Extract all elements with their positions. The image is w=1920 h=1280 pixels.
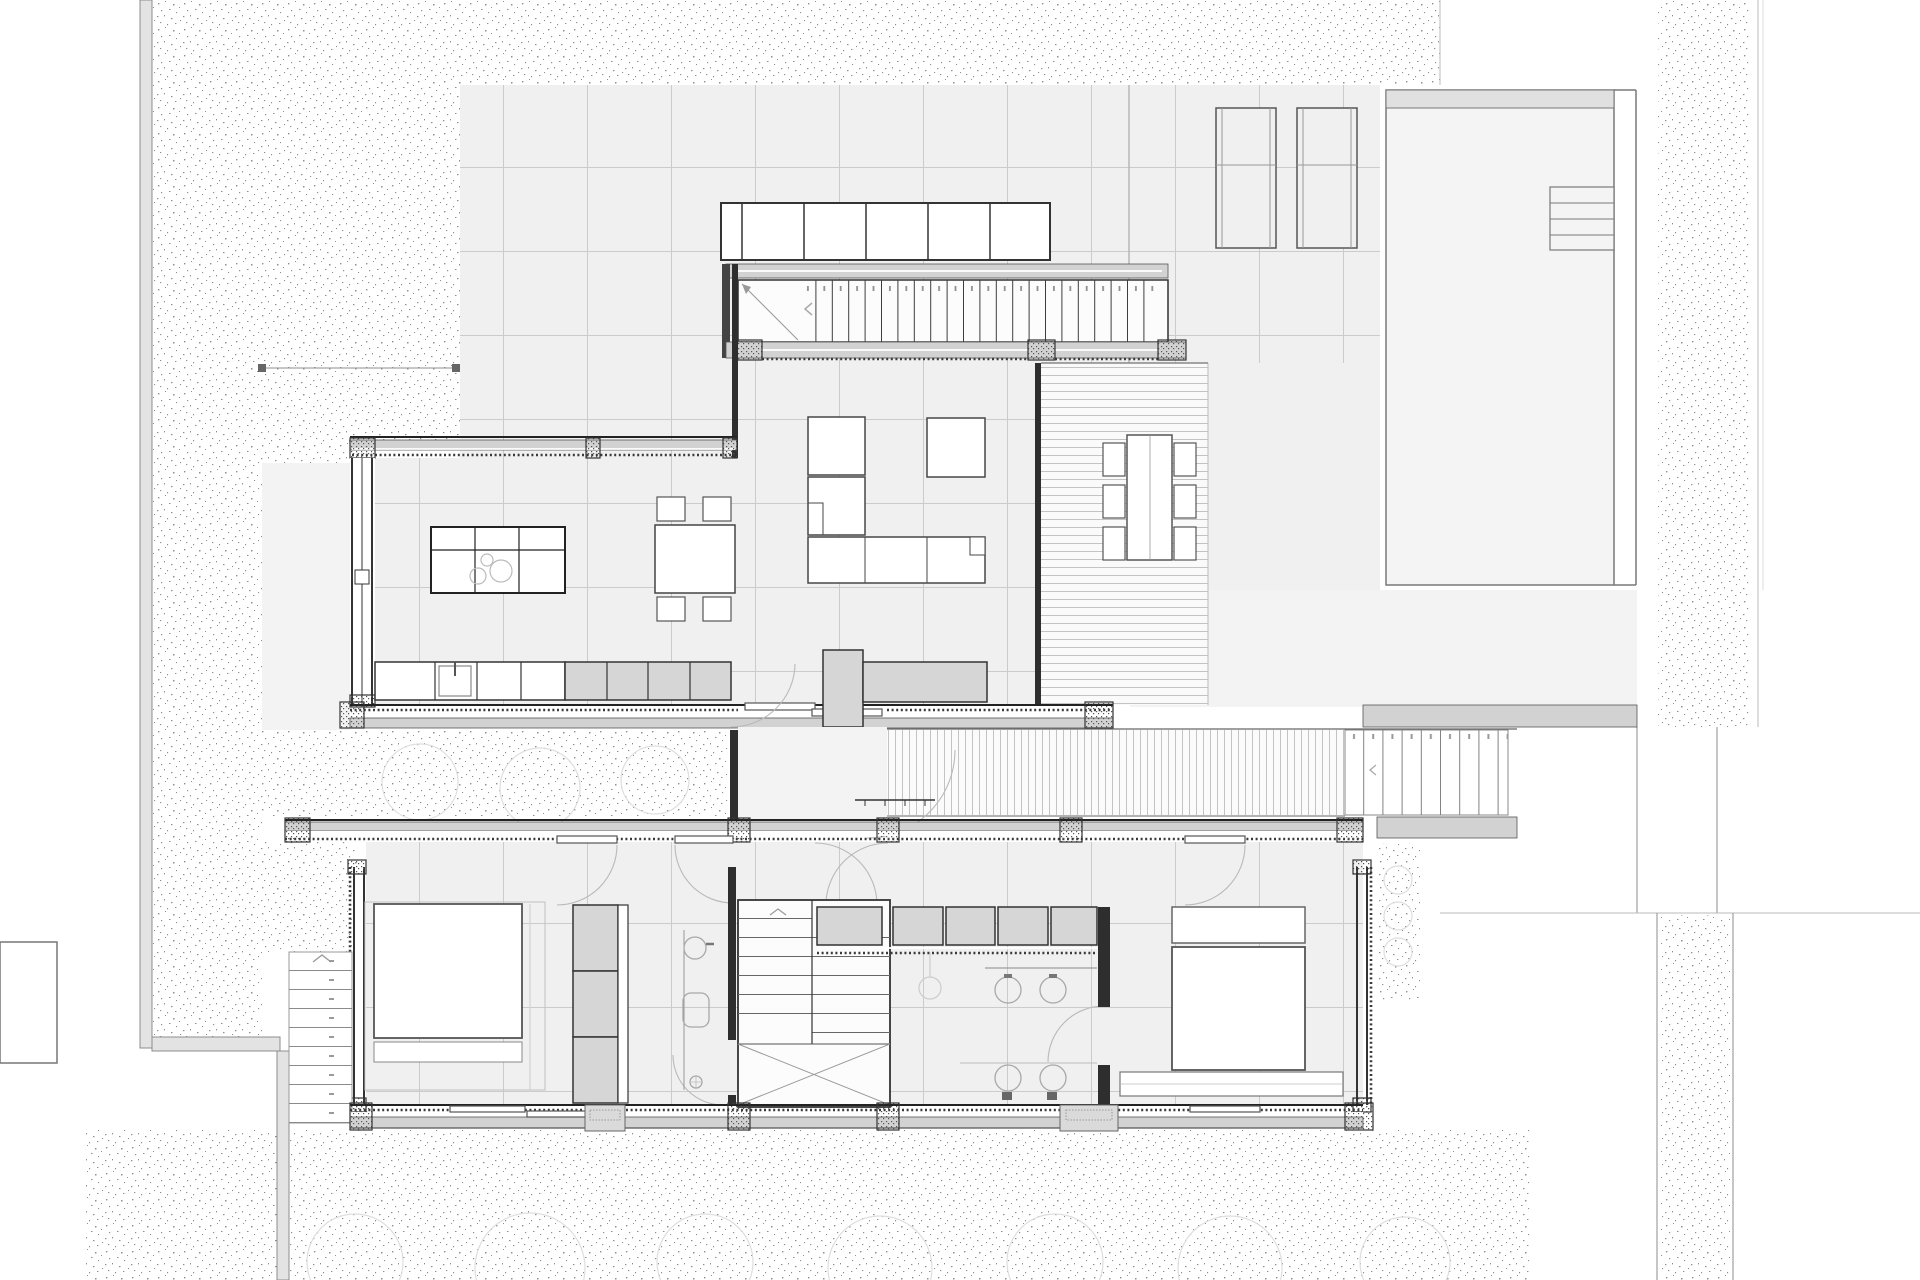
door-leaf: [1185, 836, 1245, 843]
pool-steps: [1550, 187, 1614, 250]
bed: [1172, 947, 1305, 1070]
door-leaf: [675, 836, 733, 843]
outbuilding: [0, 942, 57, 1063]
pool-deck-edge-band: [1363, 705, 1637, 727]
pool-coping: [1386, 90, 1614, 108]
wardrobe-cell: [573, 905, 618, 971]
outdoor-chair: [1103, 443, 1125, 476]
outdoor-table: [1127, 435, 1172, 560]
kitchen-west-window: [350, 458, 375, 707]
boundary-wall-west: [140, 0, 152, 1048]
terrace-bench: [1297, 108, 1357, 248]
outdoor-dining-set: [1103, 435, 1196, 560]
wardrobe-cell: [573, 1037, 618, 1103]
sliding-door-leaf: [1190, 1106, 1260, 1112]
dining-chair: [703, 497, 731, 521]
floor-plan-canvas: [0, 0, 1920, 1280]
door-leaf: [557, 836, 617, 843]
outdoor-chair: [1174, 443, 1196, 476]
dining-table: [655, 525, 735, 593]
dining-chair: [657, 497, 685, 521]
foot-bench: [374, 1042, 522, 1062]
north-facade-lower: [285, 818, 1363, 843]
wardrobe-cell: [573, 971, 618, 1037]
sliding-door-leaf: [450, 1106, 525, 1112]
west-exterior-stair: [289, 952, 352, 1123]
outdoor-chair: [1174, 485, 1196, 518]
corridor: [738, 727, 887, 820]
outdoor-chair: [1174, 527, 1196, 560]
storage-row: [721, 203, 1050, 260]
link-zone: [730, 727, 1517, 838]
terrace-bench: [1216, 108, 1276, 248]
entry-stoop: [585, 1105, 625, 1131]
parapet-band: [1377, 817, 1517, 838]
wall-living-west-stub: [732, 264, 738, 458]
south-facade-upper: [340, 702, 1113, 728]
entry-stoop: [1060, 1105, 1118, 1131]
kitchen-island: [431, 527, 565, 593]
headboard: [1172, 907, 1305, 943]
pool-outer-wall: [1614, 90, 1636, 585]
dining-chair: [657, 597, 685, 621]
bed: [374, 904, 522, 1038]
boundary-wall-south-spur: [277, 1051, 289, 1280]
east-garden-steps: [1345, 730, 1508, 815]
stair-treads: [800, 280, 1154, 342]
outdoor-chair: [1103, 485, 1125, 518]
dining-chair: [703, 597, 731, 621]
swimming-pool: [1386, 90, 1636, 585]
west-walkway: [262, 463, 350, 730]
counter-l-run: [863, 662, 987, 702]
counter-l-return: [823, 650, 863, 727]
floor-plan-drawing: [0, 0, 1920, 1280]
wall-living-east: [1035, 363, 1041, 705]
entry-stair: [722, 264, 1186, 360]
lower-wing: [285, 818, 1373, 1131]
boundary-wall-return: [152, 1037, 280, 1051]
outdoor-chair: [1103, 527, 1125, 560]
